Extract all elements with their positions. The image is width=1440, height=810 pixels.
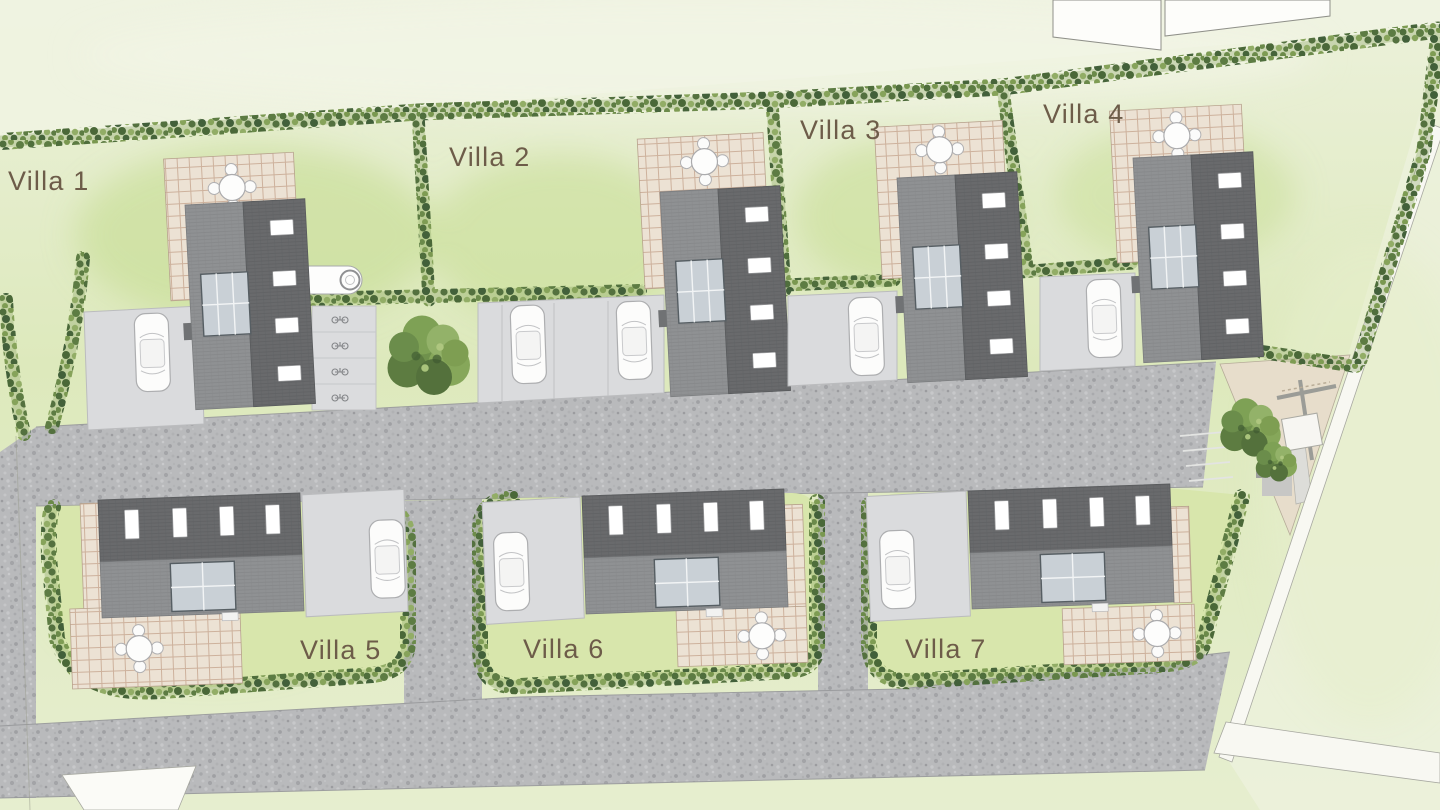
bike-parking bbox=[312, 306, 376, 410]
car bbox=[1086, 279, 1123, 358]
car bbox=[616, 301, 653, 380]
car bbox=[510, 305, 547, 384]
villa-4-label: Villa 4 bbox=[1043, 99, 1124, 129]
villa-7-label: Villa 7 bbox=[905, 634, 986, 664]
car bbox=[369, 519, 406, 598]
site-plan-page: Villa 1 Villa 2 Villa 3 Villa 4 Villa 5 … bbox=[0, 0, 1440, 810]
connector-road-2 bbox=[818, 492, 868, 693]
villa-3-building bbox=[889, 172, 1028, 383]
car bbox=[493, 532, 530, 611]
villa-6-building bbox=[582, 489, 788, 621]
villa-2-label: Villa 2 bbox=[449, 142, 530, 172]
villa-2-building bbox=[652, 186, 791, 397]
villa-7-building bbox=[968, 484, 1174, 616]
villa-3-label: Villa 3 bbox=[800, 115, 881, 145]
car bbox=[134, 313, 171, 392]
villa-1-building bbox=[177, 199, 316, 410]
shared-parking bbox=[478, 295, 664, 403]
villa-1-label: Villa 1 bbox=[8, 166, 89, 196]
villa-5-label: Villa 5 bbox=[300, 635, 381, 665]
car bbox=[848, 297, 885, 376]
car bbox=[879, 530, 916, 609]
villa-6-label: Villa 6 bbox=[523, 634, 604, 664]
villa-5-building bbox=[98, 493, 304, 625]
site-plan-map: Villa 1 Villa 2 Villa 3 Villa 4 Villa 5 … bbox=[0, 0, 1440, 810]
villa-4-building bbox=[1125, 152, 1264, 363]
